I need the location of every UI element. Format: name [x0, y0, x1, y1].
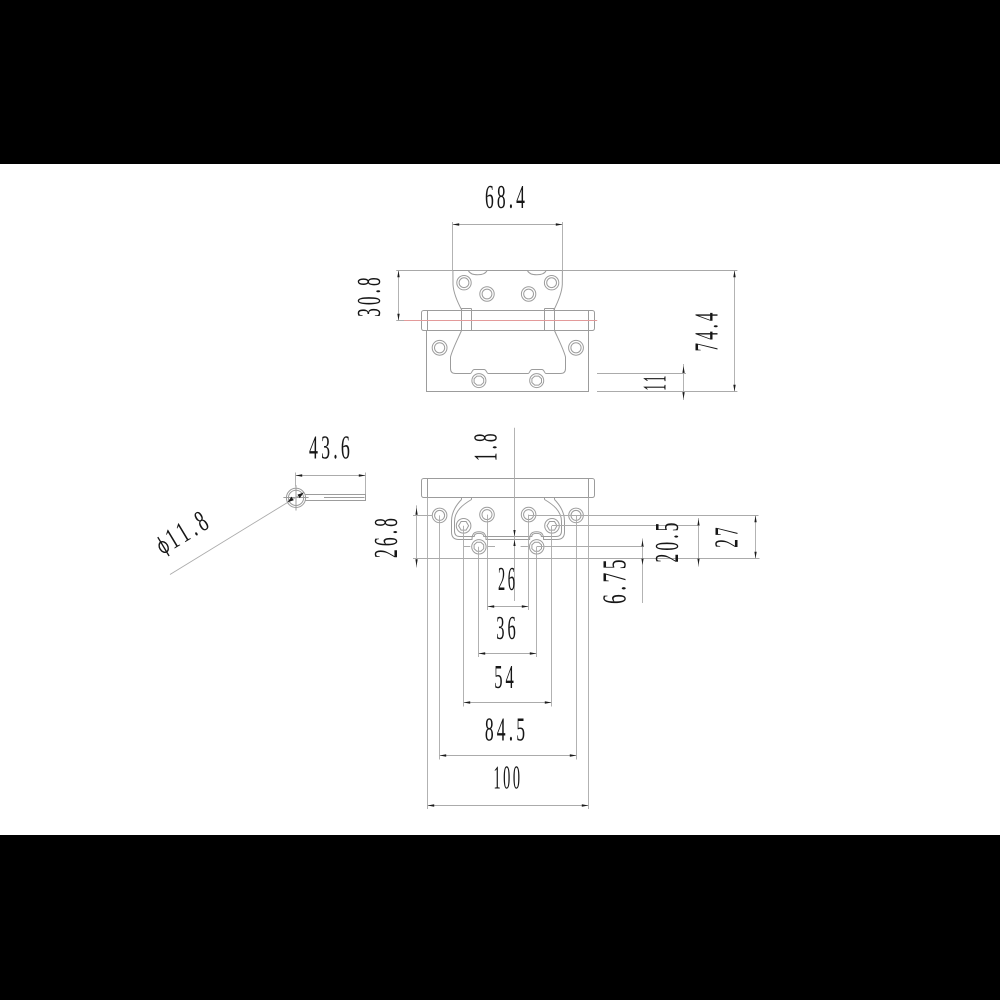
svg-text:6.75: 6.75 [597, 556, 634, 604]
svg-text:100: 100 [494, 760, 523, 797]
svg-text:1.8: 1.8 [467, 430, 504, 461]
svg-text:27: 27 [709, 524, 746, 548]
svg-text:68.4: 68.4 [485, 179, 528, 216]
svg-text:26.8: 26.8 [368, 515, 405, 558]
svg-text:43.6: 43.6 [309, 430, 353, 467]
svg-text:36: 36 [496, 610, 518, 647]
svg-text:54: 54 [494, 659, 516, 696]
svg-text:20.5: 20.5 [649, 520, 686, 563]
svg-text:74.4: 74.4 [689, 310, 726, 352]
svg-text:11: 11 [637, 373, 674, 391]
svg-text:84.5: 84.5 [485, 712, 528, 749]
svg-text:26: 26 [498, 561, 518, 598]
svg-text:30.8: 30.8 [351, 274, 388, 317]
